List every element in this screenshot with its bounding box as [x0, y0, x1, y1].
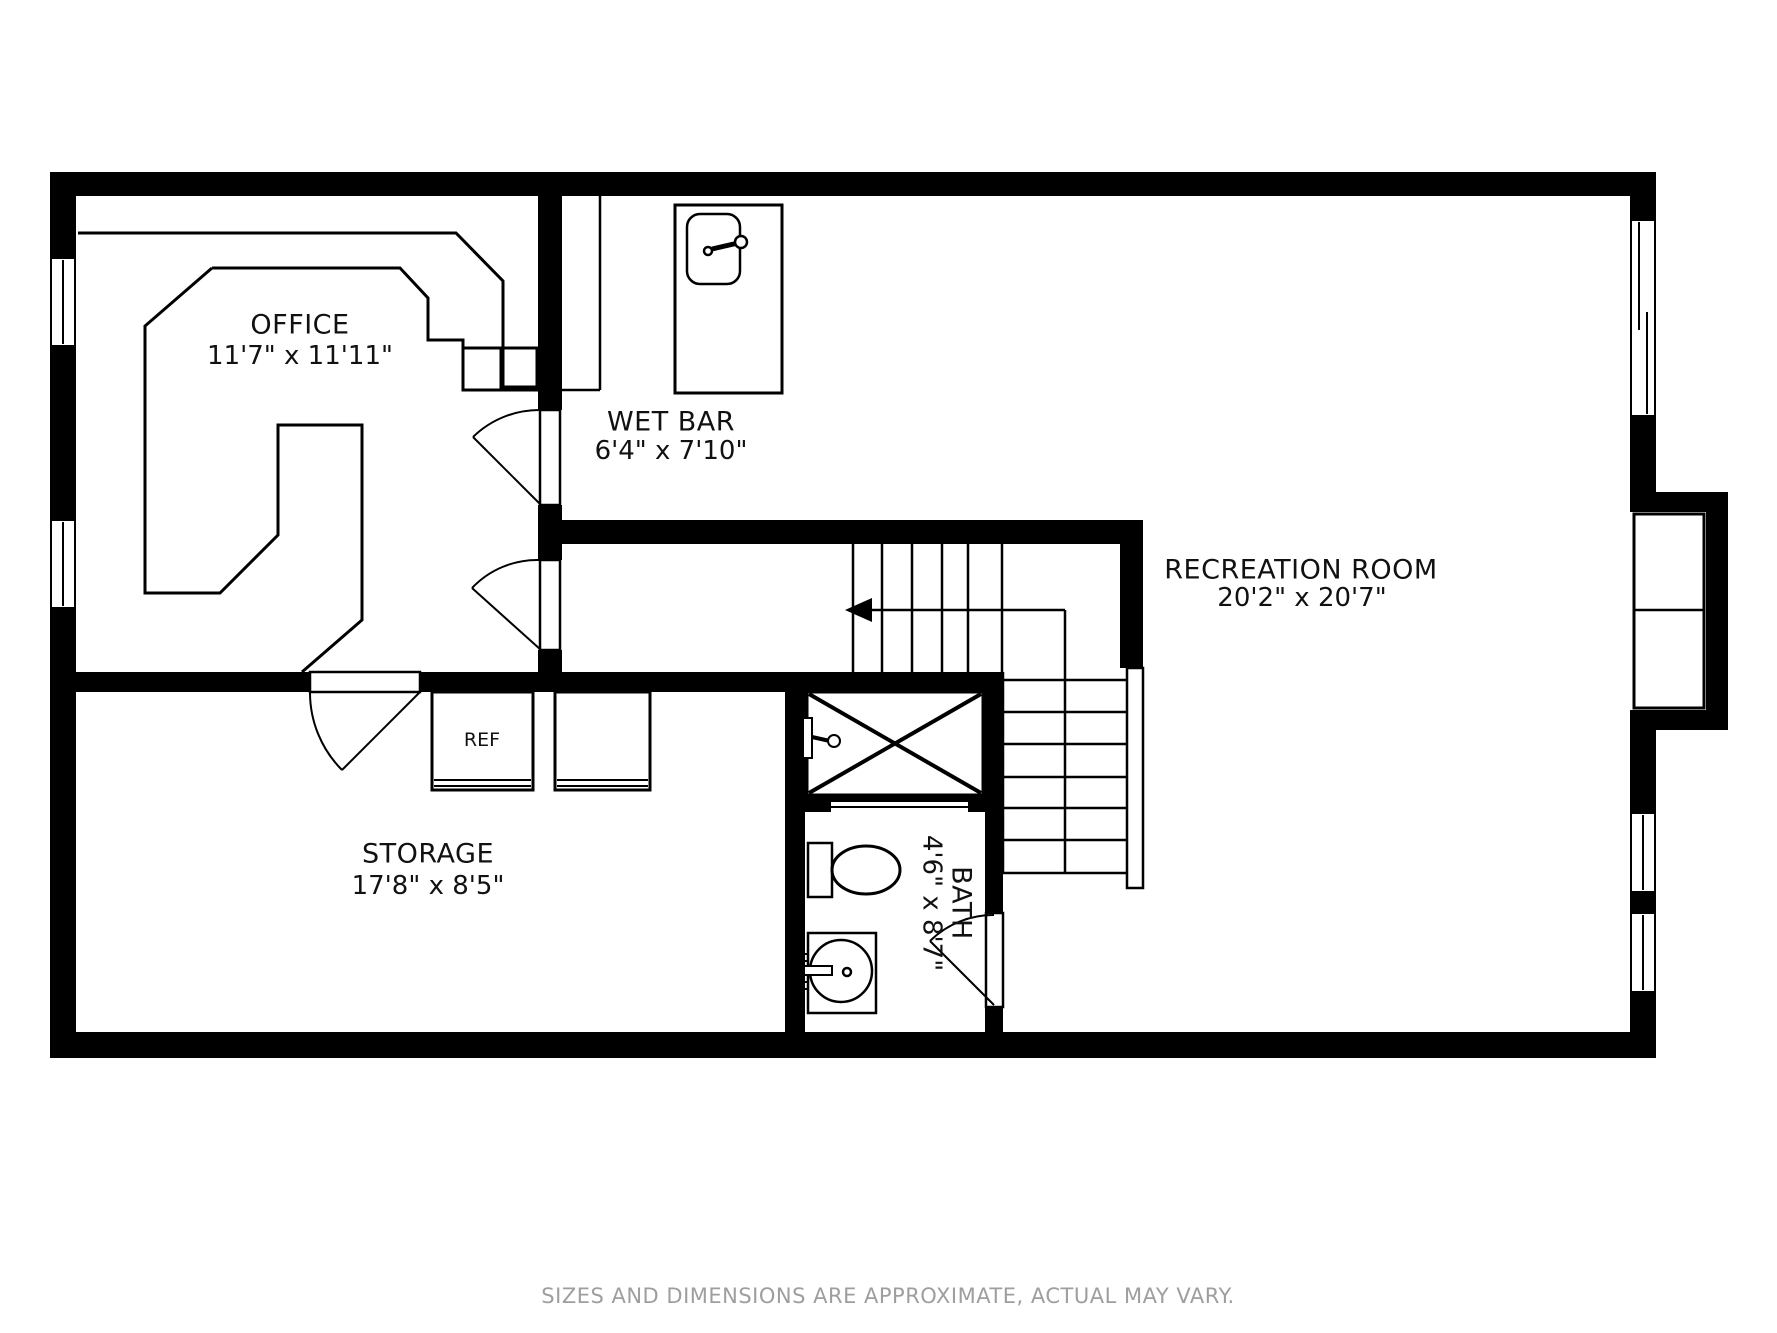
bath-east-wall-lower: [985, 1005, 1003, 1032]
office-desk: [78, 233, 540, 672]
window-icon-recroom-bottom-1: [1631, 813, 1655, 892]
office-east-wall-upper: [538, 172, 562, 410]
window-icon-office-1: [51, 258, 75, 346]
bumpout-wall-right: [1706, 492, 1728, 730]
bath-dims: 4'6" x 8'7": [916, 835, 946, 971]
storage-top-wall-west: [76, 672, 310, 692]
office-dims: 11'7" x 11'11": [207, 342, 393, 372]
sink-icon-bath: [800, 933, 876, 1013]
storage-label: STORAGE: [362, 838, 494, 869]
floorplan-canvas: OFFICE 11'7" x 11'11" WET BAR 6'4" x 7'1…: [0, 0, 1777, 1333]
toilet-icon: [808, 843, 900, 897]
wall-right-seg2: [1630, 416, 1656, 492]
window-icon-office-2: [51, 520, 75, 608]
sink-icon-wet-bar: [687, 214, 747, 284]
stair-rail: [1127, 668, 1143, 888]
wall-right-seg3: [1630, 730, 1656, 815]
recreation-room-label: RECREATION ROOM: [1164, 554, 1437, 585]
office-label: OFFICE: [250, 309, 349, 340]
wall-top: [50, 172, 1656, 196]
wall-bottom: [50, 1032, 1656, 1058]
bath-label: BATH: [945, 835, 976, 971]
storage-dims: 17'8" x 8'5": [352, 872, 505, 902]
wet-bar-dims: 6'4" x 7'10": [595, 437, 748, 467]
door-swing-icon-office-upper: [473, 410, 560, 505]
wet-bar-label: WET BAR: [607, 406, 735, 437]
door-swing-icon-office-lower: [472, 560, 560, 650]
window-icon-recroom-top: [1631, 220, 1655, 416]
wetbar-hall-wall: [538, 520, 1143, 544]
interior-walls: [76, 172, 1143, 1032]
wet-bar-fixtures: [562, 196, 782, 393]
recreation-room-dims: 20'2" x 20'7": [1217, 584, 1386, 614]
bath-label-block: BATH 4'6" x 8'7": [916, 835, 977, 971]
stair-right-wall: [1120, 544, 1143, 668]
shower-icon: [803, 690, 988, 812]
bumpout-wall-bottom: [1630, 710, 1728, 730]
floorplan-drawing: [0, 0, 1777, 1333]
refrigerator-label: REF: [464, 730, 500, 752]
wall-right-seg4: [1630, 892, 1656, 915]
door-swing-icon-storage: [310, 672, 420, 770]
window-icon-recroom-bottom-2: [1631, 913, 1655, 992]
wall-right-seg5: [1630, 992, 1656, 1032]
outer-walls: [50, 172, 1728, 1058]
wall-right-seg1: [1630, 172, 1656, 220]
disclaimer-text: SIZES AND DIMENSIONS ARE APPROXIMATE, AC…: [541, 1284, 1234, 1308]
wet-bar-counter: [562, 196, 782, 393]
niche-icon: [1634, 514, 1704, 708]
appliance-box: [555, 692, 650, 790]
